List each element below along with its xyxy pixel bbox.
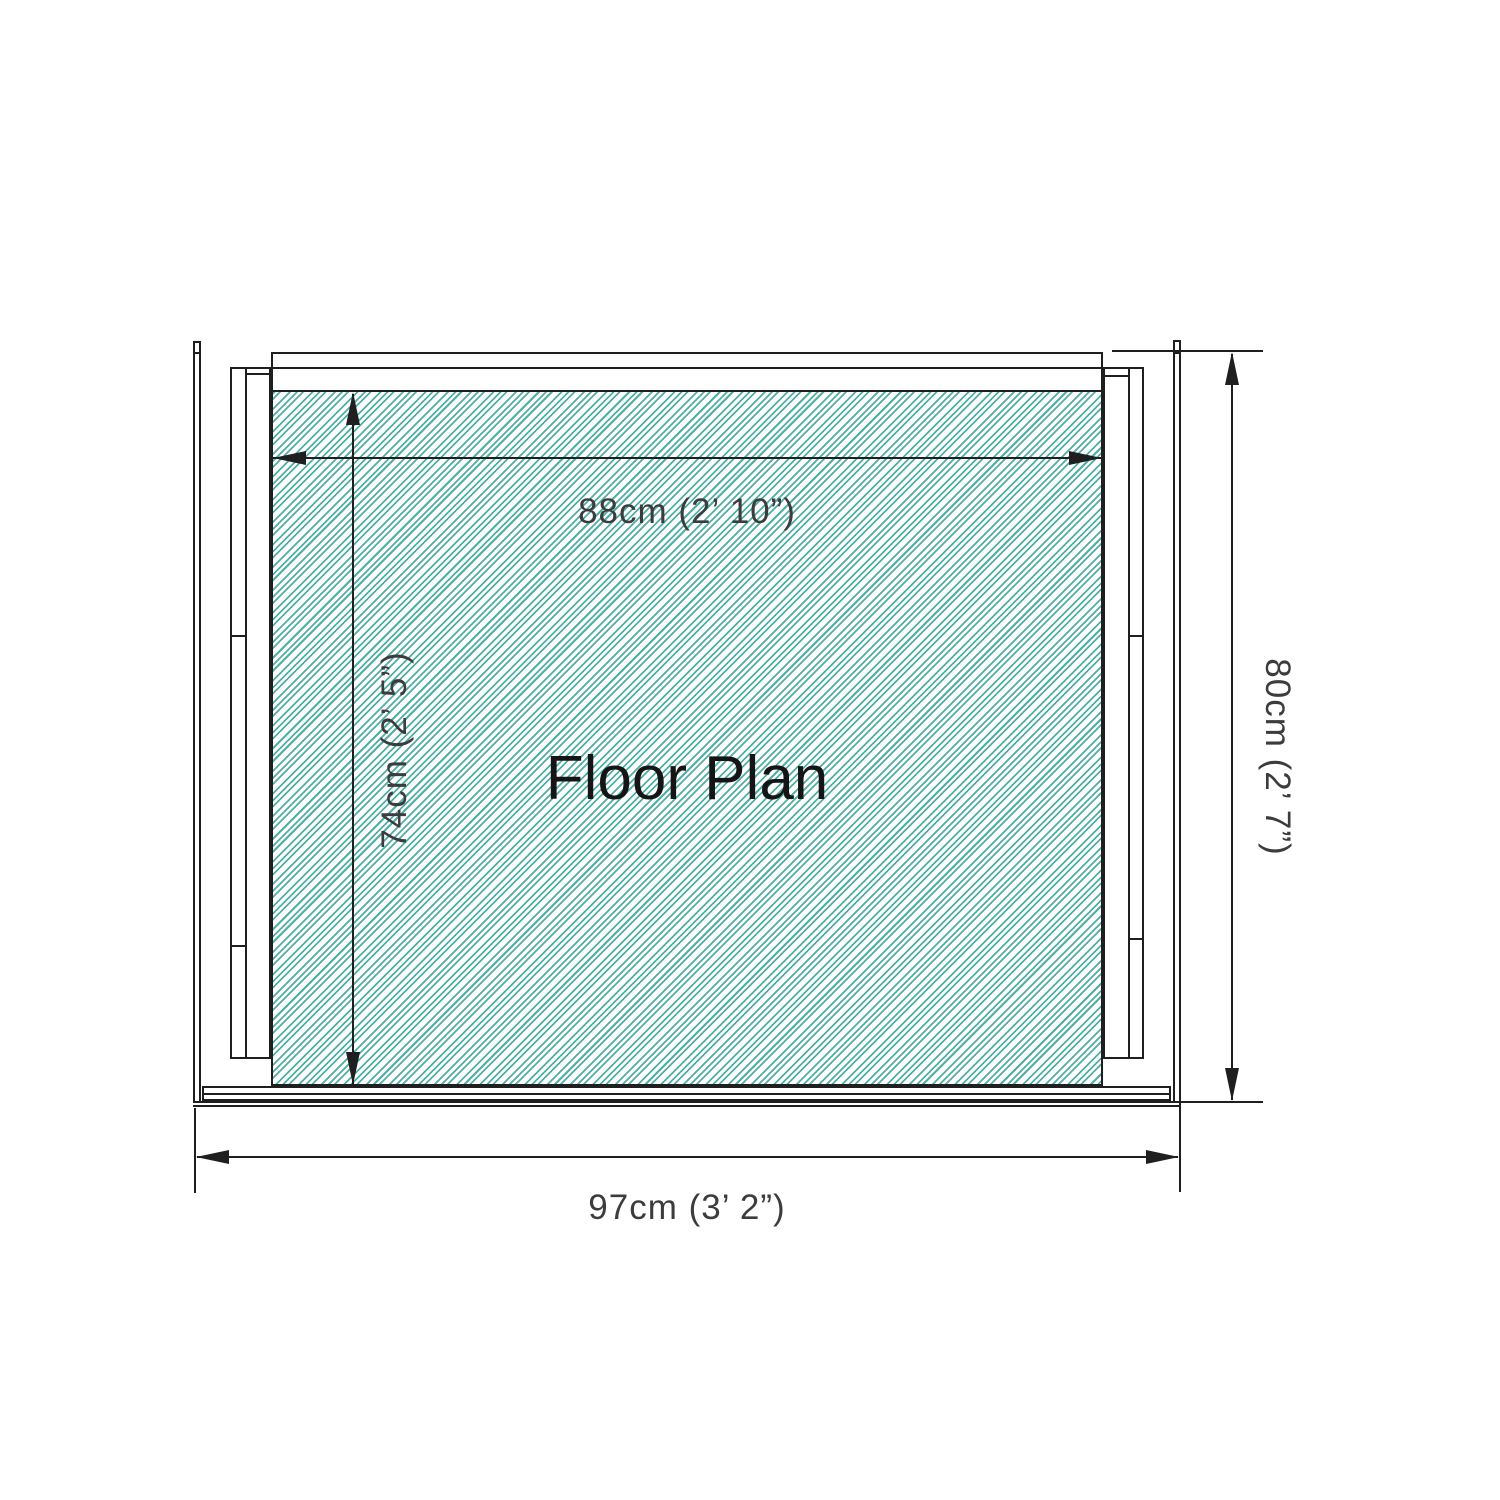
dim-inner-width-label: 88cm (2’ 10”) — [271, 490, 1103, 534]
left-wall-divider-upper — [232, 635, 245, 637]
right-wall-frame — [1103, 367, 1144, 1059]
dim-outer-depth-ext-top — [1112, 350, 1263, 352]
left-wall-inner-line — [245, 369, 247, 1057]
left-wall-frame — [230, 367, 271, 1059]
left-wall-top-strip — [245, 373, 269, 375]
right-outer-bar-tick — [1175, 352, 1179, 354]
bottom-wall-band — [202, 1086, 1171, 1101]
right-wall-divider-upper — [1130, 635, 1142, 637]
dim-outer-width-arrow-right — [1146, 1150, 1179, 1164]
dim-inner-depth-arrow-up — [346, 392, 360, 425]
plan-title: Floor Plan — [271, 740, 1103, 818]
dim-outer-depth-ext-bottom — [1181, 1101, 1263, 1103]
dim-outer-depth-arrow-down — [1225, 1068, 1239, 1101]
dim-outer-width-label: 97cm (3’ 2”) — [195, 1186, 1179, 1230]
top-rail-line — [273, 367, 1101, 369]
bottom-outer-edge — [193, 1101, 1181, 1107]
right-outer-bar — [1173, 340, 1181, 1103]
dim-outer-depth-arrow-up — [1225, 352, 1239, 385]
dim-inner-width-arrow-left — [273, 451, 306, 465]
left-outer-bar — [193, 341, 201, 1103]
right-wall-top-strip — [1105, 375, 1128, 377]
dim-inner-width-line — [273, 457, 1102, 459]
right-wall-inner-line — [1128, 369, 1130, 1057]
dim-outer-depth-label: 80cm (2’ 7”) — [1255, 607, 1299, 907]
dim-outer-width-arrow-left — [196, 1150, 229, 1164]
left-outer-bar-tick — [195, 352, 199, 354]
dim-inner-width-arrow-right — [1069, 451, 1102, 465]
bottom-wall-inner-line — [204, 1093, 1169, 1095]
dim-outer-depth-line — [1231, 354, 1233, 1100]
dim-outer-width-ext-right — [1179, 1103, 1181, 1192]
dim-outer-width-line — [197, 1156, 1178, 1158]
left-wall-divider-lower — [232, 945, 245, 947]
right-wall-divider-lower — [1130, 938, 1142, 940]
floor-plan-canvas: 88cm (2’ 10”) 74cm (2’ 5”) 80cm (2’ 7”) … — [0, 0, 1500, 1500]
dim-inner-depth-arrow-down — [346, 1052, 360, 1085]
